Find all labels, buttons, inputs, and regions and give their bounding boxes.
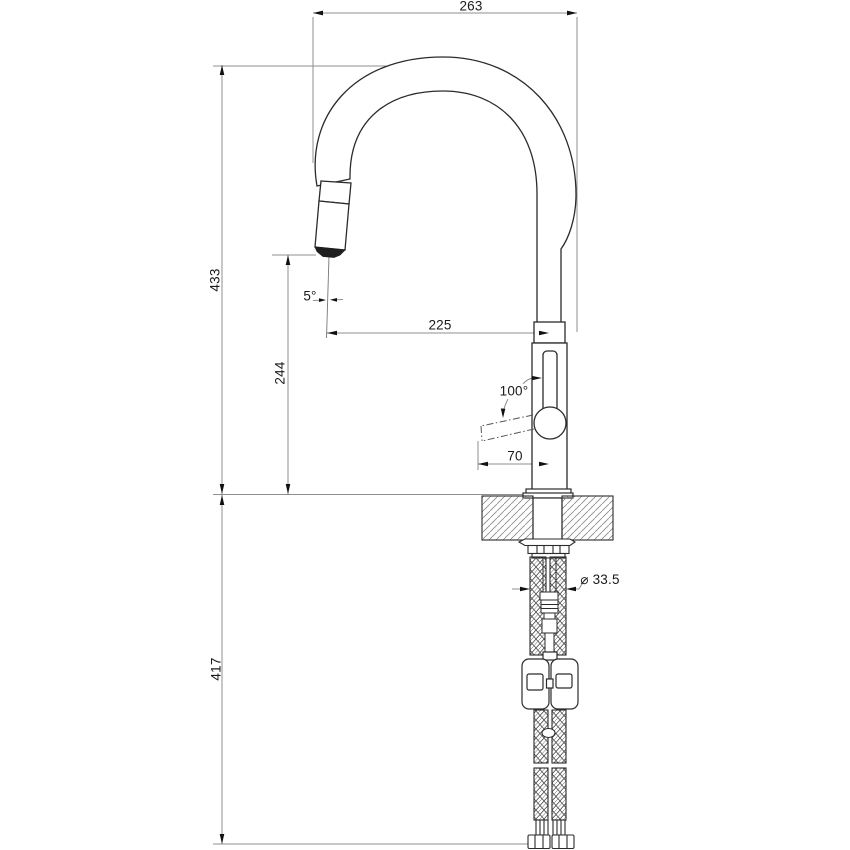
faucet-technical-drawing bbox=[0, 0, 850, 850]
hose-weight-right-window bbox=[556, 674, 572, 688]
supply-hoses-lower bbox=[534, 710, 566, 820]
hose-weight-left-window bbox=[527, 674, 543, 690]
mounting-hardware bbox=[519, 539, 575, 558]
countertop-right bbox=[562, 496, 613, 540]
hose-clip bbox=[542, 729, 555, 738]
dim-label-below-deck-length: 417 bbox=[209, 657, 224, 680]
spray-head-body bbox=[315, 201, 349, 250]
handle-lever bbox=[543, 351, 557, 415]
dim-label-outlet-angle: 5° bbox=[303, 289, 316, 304]
phantom-lever-position bbox=[481, 415, 534, 441]
hex-nut-left bbox=[528, 835, 550, 849]
hose-end-fittings bbox=[528, 820, 574, 849]
dim-label-height-above-deck: 433 bbox=[208, 268, 223, 291]
deck-shank bbox=[533, 498, 562, 540]
neck-collar bbox=[534, 322, 565, 343]
mounting-washer bbox=[519, 539, 575, 546]
dim-label-mounting-hole-diameter: ⌀ 33.5 bbox=[580, 572, 619, 588]
dim-label-spout-outlet-height: 244 bbox=[273, 361, 288, 384]
spray-head-collar bbox=[319, 181, 351, 204]
spray-head bbox=[315, 181, 351, 258]
dim-label-handle-projection: 70 bbox=[507, 449, 522, 464]
handle-pivot bbox=[534, 407, 566, 439]
dim-label-spout-reach: 225 bbox=[428, 318, 451, 333]
countertop-left bbox=[482, 496, 533, 540]
drawing-canvas: 263 433 244 5° 225 100° 70 ⌀ 33.5 417 bbox=[0, 0, 850, 850]
hose-weight bbox=[522, 652, 578, 709]
dim-label-handle-swing-angle: 100° bbox=[500, 384, 529, 399]
gooseneck-spout bbox=[315, 57, 576, 323]
hex-nut-right bbox=[552, 835, 574, 849]
dim-label-overall-depth: 263 bbox=[459, 0, 482, 14]
mounting-nut bbox=[528, 546, 569, 554]
